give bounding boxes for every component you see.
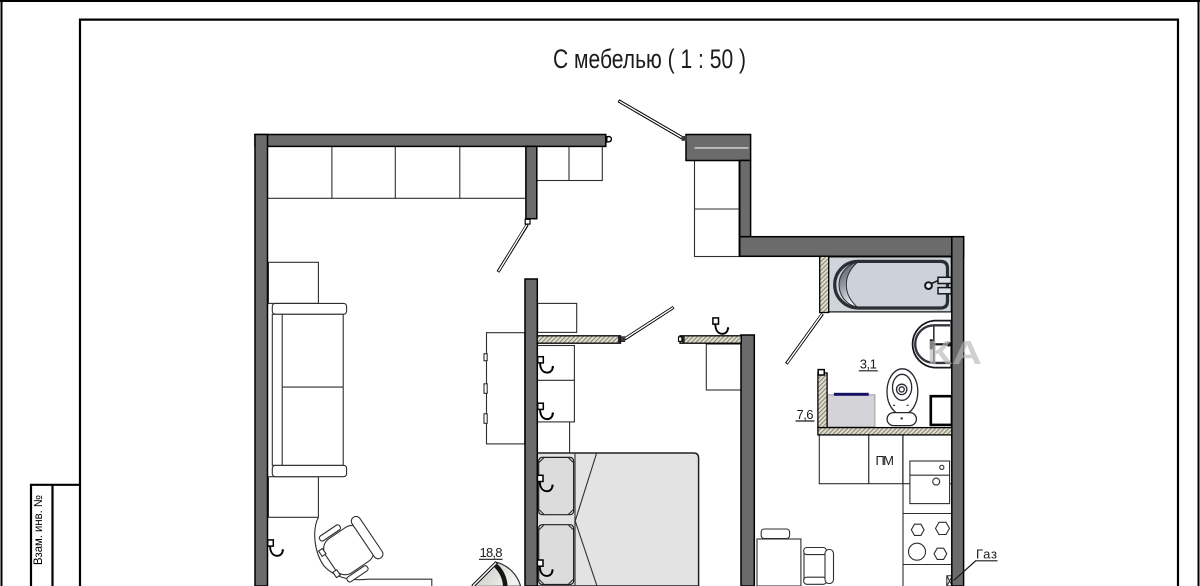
svg-text:С мебелью ( 1 : 50 ): С мебелью ( 1 : 50 ) <box>553 44 746 74</box>
svg-text:Газ: Газ <box>976 547 997 562</box>
svg-text:ПМ: ПМ <box>876 453 895 468</box>
svg-text:18,8: 18,8 <box>480 545 503 560</box>
svg-text:7,6: 7,6 <box>797 407 814 422</box>
svg-text:КА: КА <box>927 334 982 371</box>
svg-text:Взам. инв. №: Взам. инв. № <box>33 495 45 565</box>
svg-text:3,1: 3,1 <box>860 357 877 372</box>
